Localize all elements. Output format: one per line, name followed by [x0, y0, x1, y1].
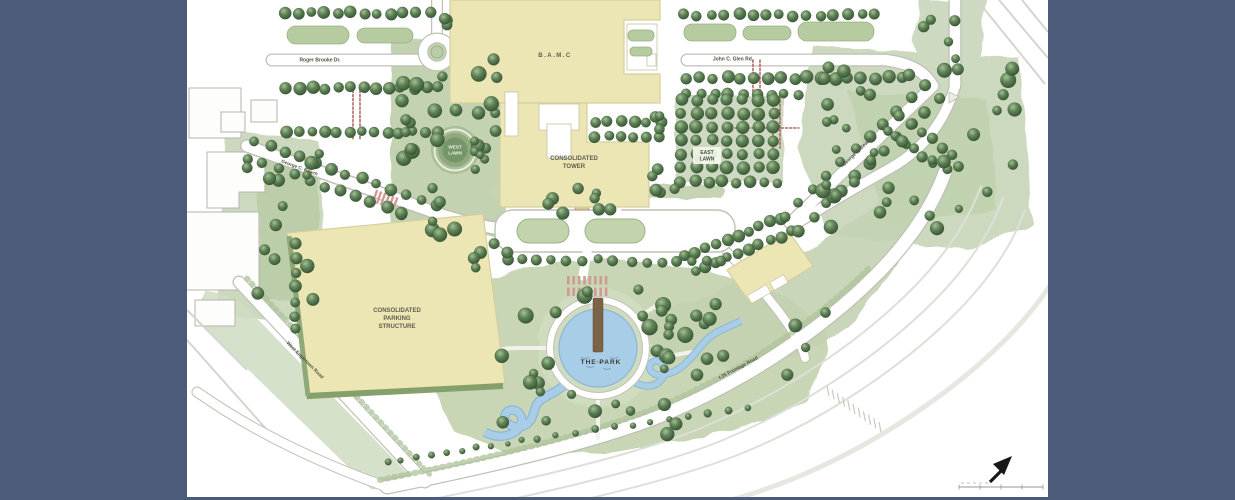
site-plan-svg: EAST LAWN B.A.M.C CONSOLIDATED TOWER CON… [187, 0, 1048, 497]
presentation-slide: EAST LAWN B.A.M.C CONSOLIDATED TOWER CON… [0, 0, 1235, 500]
slide-left-margin [0, 0, 187, 500]
tower-label-line2: TOWER [563, 164, 586, 170]
slide-right-margin [1048, 0, 1235, 500]
east-lawn-label-line1: EAST [700, 150, 713, 156]
tower-label-line1: CONSOLIDATED [550, 156, 598, 162]
north-arrow-icon [990, 456, 1012, 482]
parking-label-line1: CONSOLIDATED [373, 308, 421, 314]
parking-label-line2: PARKING [383, 316, 411, 322]
street-label-john-glen: John C. Glen Rd. [713, 57, 754, 63]
west-lawn-label-line1: WEST [448, 145, 461, 150]
street-label-roger-brooke: Roger Brooke Dr. [299, 58, 341, 64]
west-lawn-label-line2: LAWN [448, 151, 462, 156]
pier [593, 298, 603, 352]
east-lawn-badge: EAST LAWN [693, 147, 721, 164]
site-plan: EAST LAWN B.A.M.C CONSOLIDATED TOWER CON… [187, 0, 1048, 497]
bamc-label: B.A.M.C [538, 53, 572, 59]
scale-bar [959, 483, 1043, 490]
the-park-label: THE PARK [581, 359, 622, 366]
rail-hatching [827, 386, 881, 432]
parking-label-line3: STRUCTURE [379, 324, 416, 330]
east-lawn-label-line2: LAWN [700, 157, 715, 163]
